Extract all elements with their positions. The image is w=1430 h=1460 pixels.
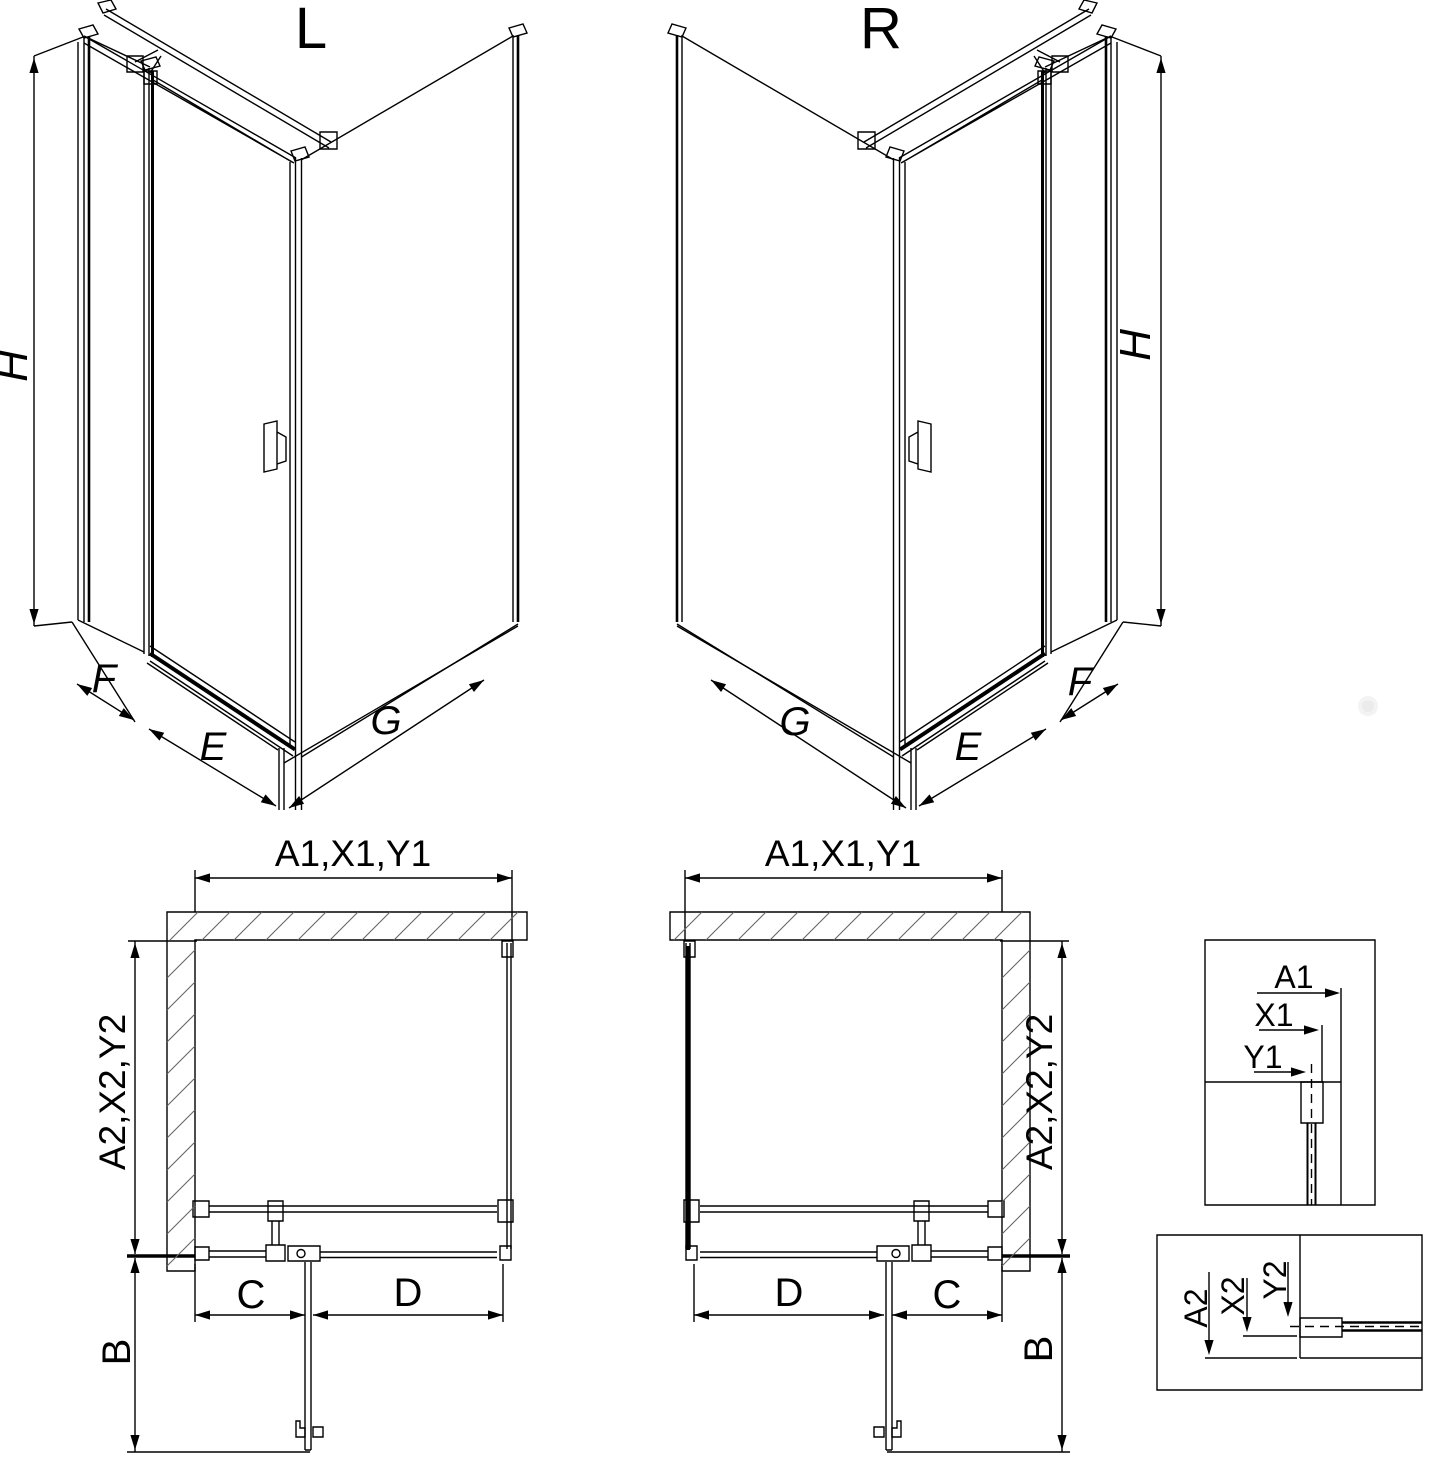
door-open	[305, 1262, 311, 1450]
unit-label-right: R	[860, 0, 902, 61]
width-dimensions	[75, 676, 487, 812]
detail-x2-label: X2	[1215, 1276, 1251, 1315]
plan-side-dim-label-right: A2,X2,Y2	[1019, 1014, 1060, 1170]
front-top-rail	[84, 36, 296, 163]
fixed-panel-glass	[502, 941, 513, 1249]
right-plan-line-art	[670, 870, 1070, 1452]
side-width-label-right: F	[1068, 660, 1095, 704]
wall-outline	[167, 912, 527, 1271]
detail-a1-label: A1	[1274, 959, 1313, 995]
plan-side-dim-label-left: A2,X2,Y2	[92, 1014, 133, 1170]
detail-y1-label: Y1	[1243, 1039, 1282, 1075]
return-width-label-right: G	[779, 700, 810, 744]
a1-dimension	[195, 870, 512, 941]
a2-b-dimension	[127, 941, 310, 1452]
return-width-label-left: G	[370, 699, 401, 743]
unit-label-left: L	[295, 0, 327, 61]
plan-top-dim-label-right: A1,X1,Y1	[765, 833, 921, 874]
detail-y2-label: Y2	[1257, 1260, 1293, 1299]
door-handle-plan	[296, 1421, 323, 1437]
support-bars	[193, 1200, 513, 1261]
door-handle	[264, 421, 286, 472]
plan-d-label-right: D	[775, 1271, 804, 1315]
detail-x1-label: X1	[1254, 997, 1293, 1033]
side-panel-f	[78, 25, 150, 652]
shower-enclosure-dimension-diagram: L R H H F E G G E F A1,X1,Y1 A1,X1,Y1 A2…	[0, 0, 1430, 1460]
height-label-left: H	[0, 350, 37, 382]
plan-top-dim-label-left: A1,X1,Y1	[275, 833, 431, 874]
plan-b-label-right: B	[1017, 1336, 1061, 1363]
door-width-label-right: E	[955, 725, 983, 769]
side-width-label-left: F	[92, 657, 119, 701]
door-hinge-column	[141, 57, 160, 657]
plan-d-label-left: D	[394, 1271, 423, 1315]
return-panel-g	[301, 24, 527, 757]
door-width-label-left: E	[200, 725, 228, 769]
watermark-dot	[1358, 696, 1378, 716]
corner-post	[290, 147, 309, 810]
height-label-right: H	[1111, 329, 1160, 361]
detail-a2-label: A2	[1178, 1288, 1214, 1327]
plan-b-label-left: B	[95, 1339, 139, 1366]
left-plan-wall-hatch	[167, 912, 518, 1266]
plan-c-label-right: C	[933, 1273, 962, 1317]
height-dimension	[29, 37, 83, 626]
plan-c-label-left: C	[237, 1273, 266, 1317]
right-plan-wall-hatch	[674, 912, 1030, 1266]
diagram-canvas: L R H H F E G G E F A1,X1,Y1 A1,X1,Y1 A2…	[0, 0, 1430, 1460]
